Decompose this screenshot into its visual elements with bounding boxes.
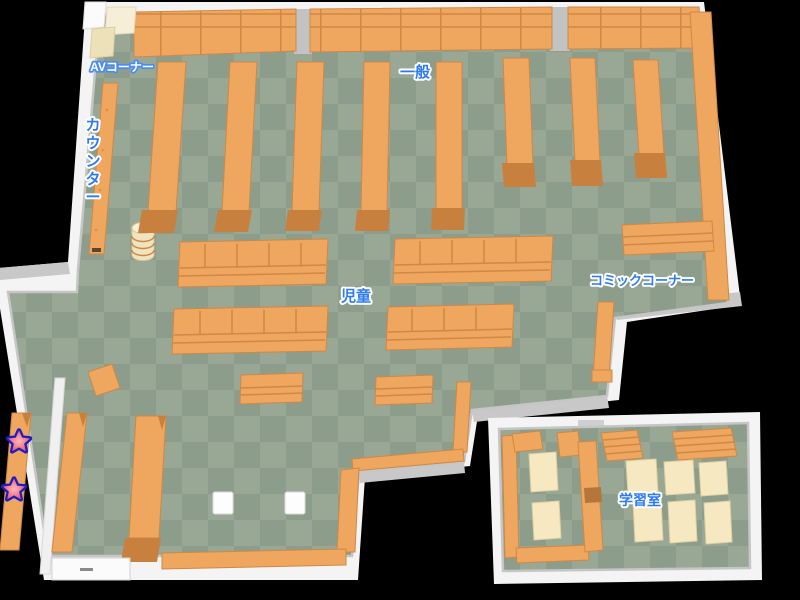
label-children: 児童 bbox=[340, 287, 371, 305]
library-floor-map: AVコーナー カウンター 一般 児童 コミックコーナー 学習室 bbox=[0, 0, 800, 600]
label-general: 一般 bbox=[400, 63, 430, 81]
entrance-door bbox=[52, 558, 130, 580]
wall-bookshelf bbox=[310, 7, 552, 52]
white-stool bbox=[285, 492, 305, 514]
wall-gap bbox=[294, 9, 312, 54]
label-comic-corner: コミックコーナー bbox=[590, 273, 694, 288]
white-stool bbox=[213, 492, 233, 514]
wall-bookshelf bbox=[568, 7, 702, 49]
label-av-corner: AVコーナー bbox=[90, 60, 154, 74]
wall-gap bbox=[550, 7, 570, 51]
label-study-room: 学習室 bbox=[619, 492, 661, 508]
wall-bookshelf bbox=[134, 9, 296, 57]
label-counter: カウンター bbox=[85, 117, 100, 206]
